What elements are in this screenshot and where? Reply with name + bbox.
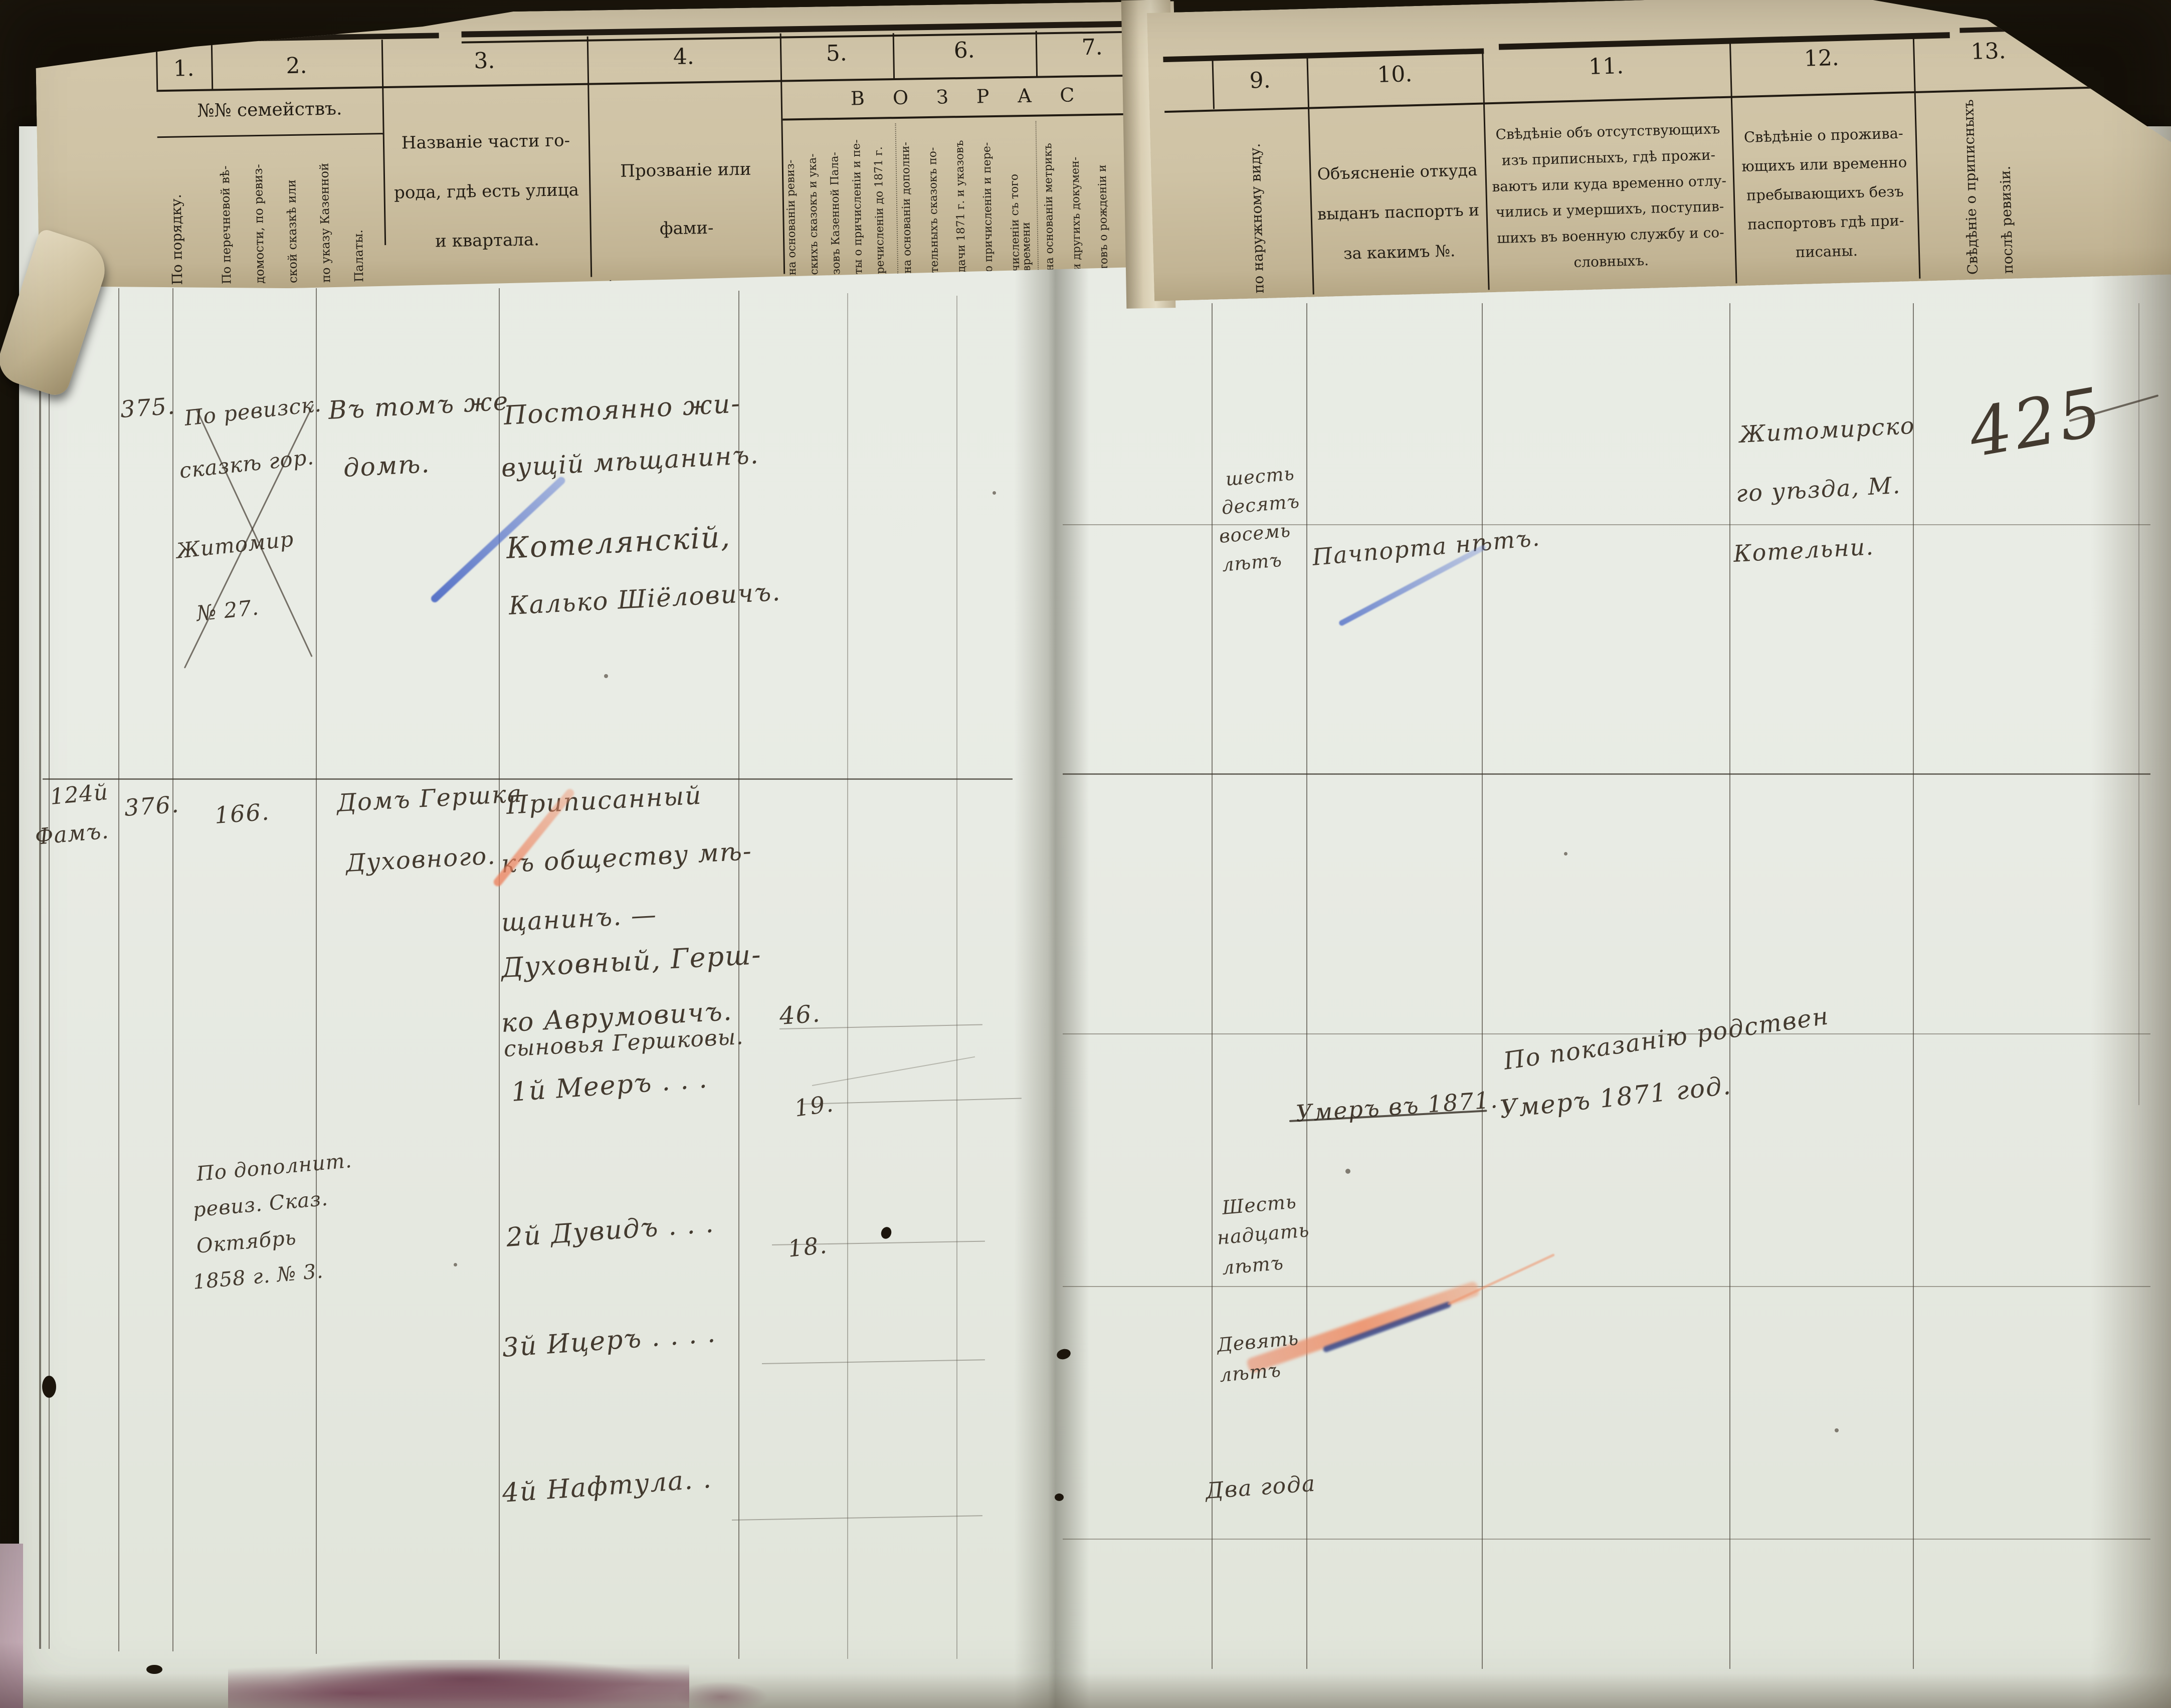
record-376-son1-age: 19. (793, 1090, 836, 1122)
col3-line: Названіе части го- (387, 116, 584, 168)
page-hole (42, 1376, 56, 1398)
table-rule (499, 288, 500, 1659)
col12-line: паспортовъ гдѣ при- (1739, 205, 1913, 239)
col6-vertical-line: тельныхъ сказокъ по- (927, 123, 940, 273)
col12-line: пребывающихъ безъ (1738, 176, 1912, 210)
row-guide (1063, 1539, 2150, 1540)
families-label: №№ семействъ. (157, 98, 383, 122)
bottom-stain (228, 1660, 689, 1708)
col4-line: Прозваніе или фами- (593, 140, 780, 259)
table-rule (316, 288, 317, 1654)
col12-line: ющихъ или временно (1737, 147, 1911, 181)
ledger-main-sheet (19, 126, 2171, 1708)
row-guide (1063, 1286, 2150, 1287)
paper-speck (454, 1263, 457, 1266)
col3-label: Названіе части го- рода, гдѣ есть улица … (387, 116, 585, 267)
col7-vertical-line: товъ о рожденіи и (1096, 120, 1110, 270)
header-divider (1729, 42, 1737, 284)
col6-vertical-line: численіи съ того времени (1008, 121, 1033, 272)
paper-speck (1835, 1428, 1839, 1432)
table-rule (39, 283, 41, 1649)
column-number-6: 6. (893, 37, 1036, 64)
col7-vertical-line: на основаніи метрикъ (1042, 121, 1056, 271)
table-rule (738, 291, 739, 1659)
paper-speck (1564, 852, 1567, 856)
paper-speck (993, 491, 996, 495)
table-rule (118, 288, 119, 1651)
col10-label: Объясненіе откуда выданъ паспортъ и за к… (1314, 150, 1482, 275)
printed-header-sheet-left: 1. 2. 3. 4. 5. 6. 7. №№ семействъ. По по… (35, 1, 1178, 292)
col3-line: и квартала. (389, 215, 585, 267)
col5-vertical-line: ты о причисленіи и пе- (851, 124, 864, 274)
column-number-4: 4. (587, 43, 780, 71)
col1-vertical-label: По порядку. (168, 142, 184, 285)
col5-vertical-line: речисленіи до 1871 г. (873, 123, 886, 274)
sub-divider (895, 123, 898, 274)
bottom-stain (672, 1680, 772, 1708)
record-376-family-number: 166. (214, 798, 271, 829)
table-rule (1729, 303, 1730, 1669)
column-number-13: 13. (1913, 37, 2064, 66)
header-divider (1482, 50, 1490, 290)
col2-vertical-label: по указу Казенной (318, 140, 332, 283)
col2-vertical-label: По перечневой вѣ- (219, 141, 233, 284)
col10-line: Объясненіе откуда (1314, 150, 1480, 194)
header-top-rule (229, 33, 439, 42)
sub-divider (1035, 121, 1039, 272)
col2-vertical-label: ской сказкѣ или (285, 140, 299, 283)
printed-header-sheet-right: 9. 10. 11. 12. 13. по наружному виду. Об… (1147, 0, 2171, 301)
col13-vertical-label: послѣ ревизіи. (1997, 98, 2015, 274)
col5-vertical-line: зовъ Казенной Пала- (829, 124, 842, 275)
col6-vertical-line: о причисленіи и пере- (981, 122, 995, 272)
header-divider (1913, 35, 1921, 279)
col10-line: выданъ паспортъ и (1315, 190, 1482, 235)
header-rule (157, 133, 383, 138)
col12-line: писаны. (1739, 235, 1913, 268)
col12-label: Свѣдѣніе о прожива- ющихъ или временно п… (1736, 118, 1913, 268)
col9-vertical-label: по наружному виду. (1248, 118, 1266, 294)
header-divider (780, 34, 785, 274)
table-rule (1913, 303, 1914, 1669)
col2-vertical-label: Палаты. (351, 139, 365, 282)
table-rule (1212, 303, 1213, 1669)
table-rule (2138, 303, 2139, 1105)
paper-speck (1345, 1169, 1350, 1174)
column-number-11: 11. (1482, 51, 1730, 83)
col5-vertical-line: скихъ сказокъ и ука- (807, 124, 821, 275)
paper-speck (604, 674, 608, 678)
table-rule (172, 288, 173, 1651)
column-number-2: 2. (211, 52, 382, 80)
header-rule (782, 113, 1150, 121)
col6-vertical-line: на основаніи дополни- (900, 123, 913, 274)
table-rule (49, 283, 50, 1649)
col12-line: Свѣдѣніе о прожива- (1736, 118, 1910, 152)
record-375-house: домѣ. (342, 449, 431, 483)
column-number-1: 1. (156, 55, 212, 82)
column-number-10: 10. (1307, 60, 1483, 90)
table-rule (1482, 303, 1483, 1669)
table-rule (1306, 303, 1307, 1669)
col6-vertical-line: дачи 1871 г. и указовъ (954, 122, 967, 273)
record-376-head-age: 46. (778, 999, 822, 1030)
col10-line: за какимъ №. (1316, 230, 1483, 275)
age-band-label: В О З Р А С (785, 83, 1150, 110)
record-separator (43, 778, 1013, 780)
col5-vertical-line: на основаніи ревиз- (785, 125, 799, 275)
column-number-9: 9. (1212, 67, 1308, 95)
page-edge-shade (2091, 126, 2171, 1708)
book-gutter-shadow (1014, 126, 1089, 1708)
record-376-number: 376. (123, 790, 180, 821)
column-number-3: 3. (381, 47, 587, 75)
header-divider (1306, 57, 1314, 295)
record-separator (1063, 773, 2150, 775)
column-number-5: 5. (780, 40, 893, 67)
page-edge-under (0, 1544, 23, 1708)
table-rule (956, 296, 957, 1659)
table-rule (847, 293, 848, 1659)
ink-blot (1055, 1493, 1064, 1501)
col13-vertical-label: Свѣдѣніе о приписныхъ (1961, 99, 1980, 275)
record-375-number: 375. (119, 392, 176, 423)
record-376-son2-age: 18. (786, 1231, 829, 1262)
scanned-ledger-spread: 375. По ревизск. сказкѣ гор. Житомир № 2… (0, 0, 2171, 1708)
column-number-12: 12. (1729, 43, 1913, 74)
record-376-margin: 124й (49, 779, 109, 810)
col7-vertical-line: и другихъ докумен- (1069, 120, 1083, 271)
col3-line: рода, гдѣ есть улица (388, 165, 585, 218)
col2-vertical-label: домости, по ревиз- (252, 141, 266, 284)
col11-label: Свѣдѣніе объ отсутствующихъ изъ приписны… (1489, 116, 1730, 278)
header-divider (587, 37, 593, 277)
ink-blot (146, 1665, 162, 1674)
header-top-rule (1959, 22, 2171, 33)
